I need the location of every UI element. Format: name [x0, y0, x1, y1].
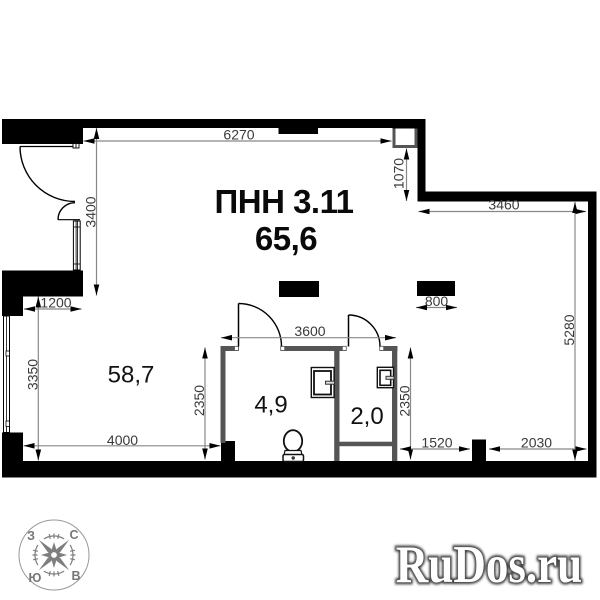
svg-text:2350: 2350	[191, 385, 207, 416]
svg-text:3600: 3600	[294, 323, 325, 339]
svg-text:2,0: 2,0	[350, 403, 383, 430]
svg-text:2030: 2030	[521, 435, 552, 451]
svg-text:З: З	[27, 529, 35, 543]
svg-text:65,6: 65,6	[255, 220, 317, 257]
svg-text:1520: 1520	[421, 435, 452, 451]
svg-text:5280: 5280	[561, 314, 577, 345]
svg-text:RuDos.ru: RuDos.ru	[396, 535, 582, 594]
svg-text:4000: 4000	[107, 432, 138, 448]
svg-text:6270: 6270	[223, 127, 254, 143]
svg-text:800: 800	[425, 293, 449, 309]
svg-text:3400: 3400	[83, 196, 99, 227]
svg-text:1200: 1200	[40, 295, 71, 311]
svg-text:ПНН 3.11: ПНН 3.11	[215, 183, 354, 220]
svg-text:3460: 3460	[488, 197, 519, 213]
svg-text:4,9: 4,9	[254, 392, 287, 419]
svg-text:С: С	[69, 528, 78, 542]
svg-text:2350: 2350	[397, 385, 413, 416]
svg-text:В: В	[71, 569, 80, 583]
svg-text:58,7: 58,7	[108, 362, 155, 389]
svg-text:3350: 3350	[25, 359, 41, 390]
svg-text:1070: 1070	[391, 158, 407, 189]
svg-text:Ю: Ю	[29, 571, 42, 585]
